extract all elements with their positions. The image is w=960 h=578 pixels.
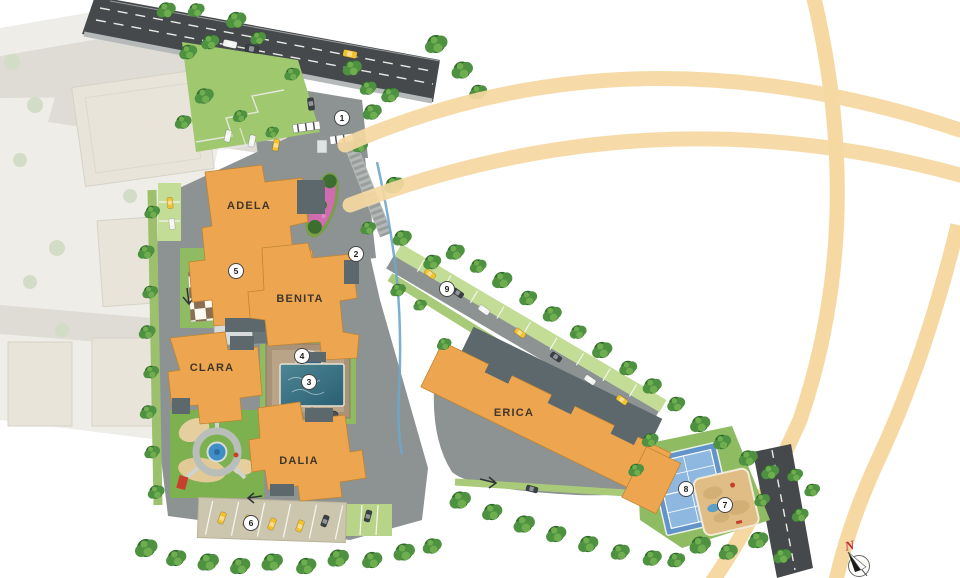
marker-3[interactable]: 3 bbox=[302, 375, 317, 390]
svg-text:8: 8 bbox=[684, 484, 689, 494]
building-label-clara: CLARA bbox=[190, 362, 235, 374]
svg-text:2: 2 bbox=[354, 249, 359, 259]
svg-text:6: 6 bbox=[249, 518, 254, 528]
svg-text:7: 7 bbox=[723, 500, 728, 510]
marker-1[interactable]: 1 bbox=[335, 111, 350, 126]
building-label-dalia: DALIA bbox=[279, 455, 319, 467]
svg-text:4: 4 bbox=[300, 351, 305, 361]
building-label-benita: BENITA bbox=[276, 293, 323, 305]
marker-9[interactable]: 9 bbox=[440, 282, 455, 297]
svg-text:1: 1 bbox=[340, 113, 345, 123]
building-label-adela: ADELA bbox=[227, 200, 271, 212]
marker-7[interactable]: 7 bbox=[718, 498, 733, 513]
marker-4[interactable]: 4 bbox=[295, 349, 310, 364]
marker-5[interactable]: 5 bbox=[229, 264, 244, 279]
marker-8[interactable]: 8 bbox=[679, 482, 694, 497]
svg-text:3: 3 bbox=[307, 377, 312, 387]
building-label-erica: ERICA bbox=[494, 407, 534, 419]
svg-text:5: 5 bbox=[234, 266, 239, 276]
svg-text:9: 9 bbox=[445, 284, 450, 294]
site-plan-page: ADELA BENITA CLARA DALIA ERICA 1 2 3 4 5… bbox=[0, 0, 960, 578]
marker-6[interactable]: 6 bbox=[244, 516, 259, 531]
marker-2[interactable]: 2 bbox=[349, 247, 364, 262]
site-plan-canvas: ADELA BENITA CLARA DALIA ERICA 1 2 3 4 5… bbox=[0, 0, 960, 578]
